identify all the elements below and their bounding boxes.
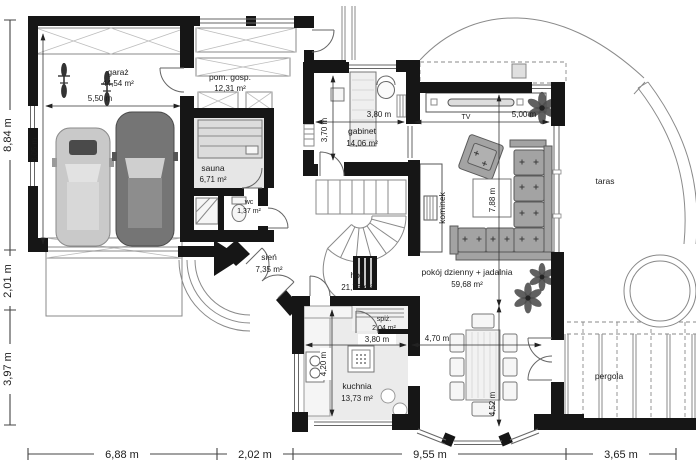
driveway bbox=[46, 258, 182, 316]
room-label-sien: sień bbox=[261, 252, 277, 262]
dim-dining-depth: 4,52 m bbox=[488, 391, 497, 416]
skylight-square bbox=[512, 64, 526, 78]
label-tv: TV bbox=[462, 114, 471, 121]
room-label-gabinet: gabinet bbox=[348, 126, 377, 136]
wc-door-swing bbox=[268, 208, 288, 228]
room-label-holl: holl bbox=[350, 270, 363, 280]
room-area-wc: 1,37 m² bbox=[237, 208, 261, 215]
room-label-garaz: garaż bbox=[107, 67, 128, 77]
dim-bottom-4: 3,65 m bbox=[604, 449, 638, 461]
room-area-holl: 21,73 m² bbox=[341, 283, 373, 292]
dim-garage-depth: 8,05 m bbox=[30, 137, 39, 162]
label-taras: taras bbox=[596, 176, 615, 186]
pergola-structure bbox=[556, 322, 696, 430]
room-area-sien: 7,35 m² bbox=[255, 265, 282, 274]
room-area-pomgosp: 12,31 m² bbox=[214, 84, 246, 93]
room-label-sauna: sauna bbox=[201, 163, 224, 173]
dim-left-3: 3,97 m bbox=[2, 352, 14, 386]
desk-chair bbox=[378, 82, 395, 99]
room-label-pokoj: pokój dzienny + jadalnia bbox=[422, 267, 513, 277]
armchair bbox=[458, 134, 504, 180]
room-area-spiz: 2,04 m² bbox=[372, 325, 396, 332]
room-label-kuchnia: kuchnia bbox=[342, 381, 372, 391]
terrace-edge-inner bbox=[638, 88, 685, 244]
dim-dining-width: 4,70 m bbox=[425, 334, 450, 343]
car-light bbox=[52, 128, 114, 246]
garage-door-swing bbox=[160, 68, 184, 92]
sauna-bench bbox=[198, 120, 262, 158]
dim-bottom-3: 9,55 m bbox=[413, 449, 447, 461]
dim-gabinet-width: 3,80 m bbox=[367, 110, 392, 119]
round-planter bbox=[624, 255, 696, 327]
floor-plan-page: 5,50 m 8,05 m 3,80 m 3,70 m 5,00 m 7,88 … bbox=[0, 0, 696, 474]
dim-living-width: 5,00 m bbox=[512, 110, 537, 119]
dim-gabinet-depth: 3,70 m bbox=[320, 117, 329, 142]
dim-bottom-1: 6,88 m bbox=[105, 449, 139, 461]
service-door-swing bbox=[312, 30, 334, 52]
porch-columns bbox=[342, 6, 355, 60]
car-dark bbox=[112, 112, 178, 246]
roof-overhang-dashed bbox=[420, 62, 566, 83]
room-label-wc: wc bbox=[244, 199, 254, 206]
label-pergola: pergola bbox=[595, 371, 624, 381]
room-label-pomgosp: pom. gosp. bbox=[209, 72, 251, 82]
shower bbox=[196, 198, 218, 224]
room-area-garaz: 44,54 m² bbox=[102, 79, 134, 88]
office-door-swing bbox=[320, 152, 344, 176]
roof-eave-arc bbox=[420, 18, 644, 78]
room-label-spiz: spiż. bbox=[377, 316, 391, 323]
dim-kitchen-width: 3,80 m bbox=[365, 335, 390, 344]
tv-icon bbox=[448, 99, 514, 106]
room-area-gabinet: 14,06 m² bbox=[346, 139, 378, 148]
room-area-pokoj: 59,68 m² bbox=[451, 280, 483, 289]
dim-living-depth: 7,88 m bbox=[488, 187, 497, 212]
dim-left-1: 8,84 m bbox=[2, 118, 14, 152]
terrace-french-door bbox=[528, 338, 552, 380]
dim-kitchen-depth: 4,20 m bbox=[319, 351, 328, 376]
storage-shelving bbox=[36, 28, 296, 110]
dim-garage-width: 5,50 m bbox=[88, 94, 113, 103]
terrace-edge-outer bbox=[648, 82, 696, 244]
dining-table bbox=[450, 314, 517, 416]
plant-icon bbox=[513, 283, 543, 314]
dim-left-2: 2,01 m bbox=[2, 264, 14, 298]
bike-icon bbox=[58, 63, 70, 98]
label-kominek: kominek bbox=[437, 191, 447, 223]
kitchen-island bbox=[348, 346, 374, 372]
room-area-kuchnia: 13,73 m² bbox=[341, 394, 373, 403]
stool bbox=[381, 389, 395, 403]
floor-plan-drawing: 5,50 m 8,05 m 3,80 m 3,70 m 5,00 m 7,88 … bbox=[0, 0, 696, 474]
room-area-sauna: 6,71 m² bbox=[199, 175, 226, 184]
dim-bottom-2: 2,02 m bbox=[238, 449, 272, 461]
kitchen-door-swing bbox=[310, 276, 330, 296]
